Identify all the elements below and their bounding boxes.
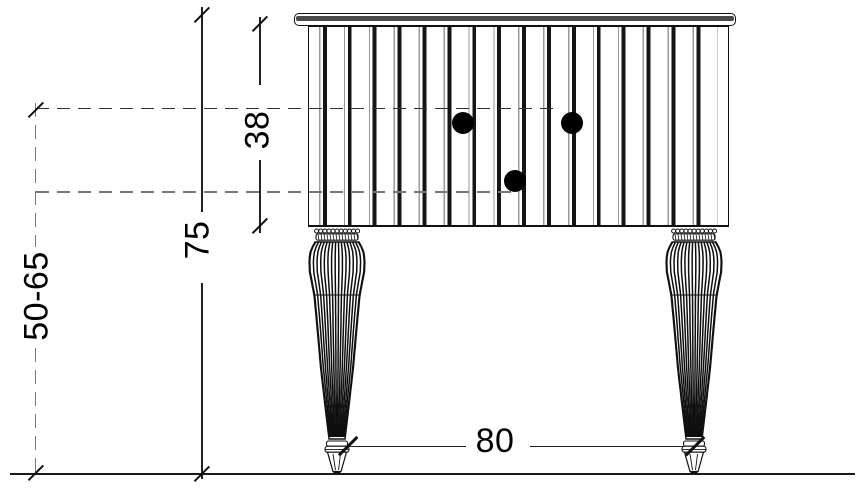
dim-cabinet-height-line-upper bbox=[259, 17, 260, 85]
dim-height-range-line-lower bbox=[35, 348, 37, 474]
slat-fluting-pattern bbox=[319, 27, 718, 225]
molding-band bbox=[296, 16, 734, 21]
furniture-technical-drawing: 75 38 50-65 80 bbox=[0, 0, 867, 494]
knob-middle bbox=[504, 170, 526, 192]
dim-total-height-line-upper bbox=[201, 7, 202, 212]
lower-height-reference-line bbox=[36, 191, 515, 193]
dim-cabinet-height-label: 38 bbox=[239, 111, 278, 150]
knob-left bbox=[452, 112, 474, 134]
knob-right bbox=[561, 112, 583, 134]
upper-height-reference-line bbox=[36, 108, 560, 110]
cabinet-top-molding bbox=[294, 13, 736, 26]
dim-width-label: 80 bbox=[476, 422, 515, 461]
dim-total-height-label: 75 bbox=[179, 221, 218, 260]
cabinet-body bbox=[308, 26, 729, 227]
dim-total-height-line-lower bbox=[201, 283, 202, 479]
ground-line bbox=[10, 473, 855, 475]
leg-left bbox=[304, 227, 370, 475]
dim-height-range-label: 50-65 bbox=[18, 251, 57, 340]
leg-right bbox=[661, 227, 727, 475]
dim-height-range-line-upper bbox=[35, 103, 37, 247]
